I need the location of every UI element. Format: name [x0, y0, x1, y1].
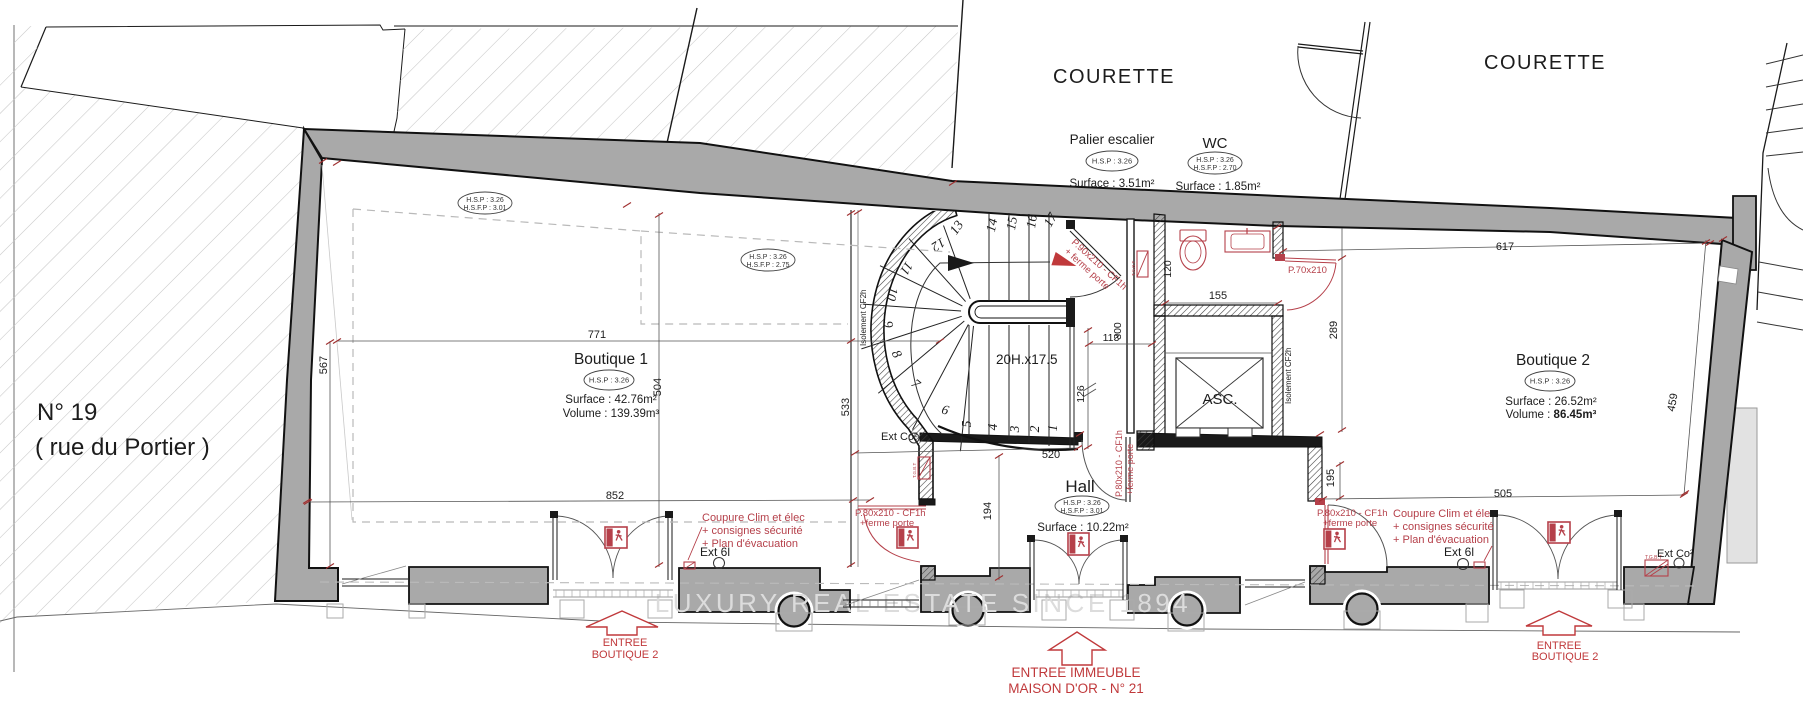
svg-text:Coupure Clim et élec: Coupure Clim et élec: [1393, 508, 1496, 520]
svg-text:Volume : 86.45m³: Volume : 86.45m³: [1506, 409, 1597, 421]
svg-text:N° 19: N° 19: [37, 399, 97, 426]
svg-text:505: 505: [1494, 488, 1512, 500]
svg-text:H.S.F.P : 2.70: H.S.F.P : 2.70: [1193, 165, 1236, 172]
svg-text:H.S.P : 3.26: H.S.P : 3.26: [1530, 377, 1570, 386]
svg-text:+ferme porte: +ferme porte: [1323, 518, 1377, 529]
svg-text:617: 617: [1496, 241, 1514, 253]
svg-text:COURETTE: COURETTE: [1053, 66, 1175, 88]
svg-text:+ferme porte: +ferme porte: [860, 518, 914, 529]
svg-text:H.S.F.P : 2.75: H.S.F.P : 2.75: [746, 262, 789, 269]
svg-text:852: 852: [606, 490, 624, 502]
svg-text:MAISON D'OR - N° 21: MAISON D'OR - N° 21: [1008, 681, 1144, 696]
svg-text:+ consignes sécurité: + consignes sécurité: [702, 525, 803, 537]
svg-text:195: 195: [1325, 469, 1337, 487]
svg-text:16: 16: [1023, 213, 1040, 229]
svg-text:BOUTIQUE 2: BOUTIQUE 2: [1532, 651, 1599, 663]
svg-text:H.S.P : 3.26: H.S.P : 3.26: [1196, 157, 1234, 164]
svg-text:H.S.P : 3.26: H.S.P : 3.26: [749, 254, 787, 261]
svg-text:BOUTIQUE 2: BOUTIQUE 2: [592, 649, 659, 661]
svg-text:300: 300: [1112, 322, 1124, 340]
svg-text:Surface : 42.76m²: Surface : 42.76m²: [565, 394, 657, 406]
svg-text:+ferme porte: +ferme porte: [1125, 444, 1135, 495]
svg-text:520: 520: [1042, 449, 1060, 461]
svg-text:533: 533: [840, 398, 852, 416]
svg-text:Boutique 2: Boutique 2: [1516, 352, 1590, 369]
svg-text:4: 4: [985, 423, 1000, 430]
svg-text:3: 3: [1007, 425, 1022, 433]
svg-text:ENTREE: ENTREE: [603, 637, 648, 649]
svg-text:126: 126: [1075, 385, 1087, 403]
svg-text:1: 1: [1045, 425, 1060, 432]
svg-text:Surface : 3.51m²: Surface : 3.51m²: [1069, 178, 1154, 190]
svg-text:H.S.F.P : 3.01: H.S.F.P : 3.01: [1060, 508, 1103, 515]
svg-text:P.70x210: P.70x210: [1288, 265, 1327, 276]
svg-text:Isolement CF2h: Isolement CF2h: [1284, 348, 1293, 404]
svg-text:Surface : 1.85m²: Surface : 1.85m²: [1175, 181, 1260, 193]
svg-text:20H.x17.5: 20H.x17.5: [996, 352, 1058, 367]
svg-text:H.S.P : 3.26: H.S.P : 3.26: [466, 197, 504, 204]
svg-text:Volume : 139.39m³: Volume : 139.39m³: [563, 408, 660, 420]
svg-text:+ consignes sécurité: + consignes sécurité: [1393, 521, 1494, 533]
svg-text:194: 194: [982, 502, 994, 520]
svg-text:COURETTE: COURETTE: [1484, 52, 1606, 74]
svg-text:T.G.B.T: T.G.B.T: [1131, 260, 1136, 276]
svg-text:Coupure Clim et élec: Coupure Clim et élec: [702, 512, 805, 524]
svg-text:Ext 6l: Ext 6l: [1444, 545, 1474, 559]
svg-text:Surface : 26.52m²: Surface : 26.52m²: [1505, 396, 1597, 408]
svg-text:P.80x210 - CF1h: P.80x210 - CF1h: [1114, 430, 1124, 497]
svg-text:155: 155: [1209, 290, 1227, 302]
svg-text:15: 15: [1003, 215, 1020, 231]
svg-text:Ext Co²: Ext Co²: [1657, 548, 1694, 560]
svg-text:Palier escalier: Palier escalier: [1070, 132, 1155, 147]
svg-text:H.S.P : 3.26: H.S.P : 3.26: [1063, 500, 1101, 507]
svg-text:Hall: Hall: [1065, 477, 1094, 496]
svg-text:2: 2: [1027, 425, 1042, 432]
svg-text:567: 567: [318, 356, 330, 374]
svg-text:WC: WC: [1203, 135, 1228, 152]
svg-text:T.G.B.T: T.G.B.T: [912, 462, 917, 478]
svg-text:ENTREE IMMEUBLE: ENTREE IMMEUBLE: [1011, 665, 1140, 680]
svg-text:( rue du Portier ): ( rue du Portier ): [35, 434, 210, 461]
svg-text:Surface : 10.22m²: Surface : 10.22m²: [1037, 522, 1129, 534]
svg-text:Ext 6l: Ext 6l: [700, 545, 730, 559]
svg-text:+ Plan d'évacuation: + Plan d'évacuation: [1393, 534, 1489, 546]
svg-text:Isolement CF2h: Isolement CF2h: [859, 290, 868, 346]
svg-text:H.S.F.P : 3.01: H.S.F.P : 3.01: [463, 205, 506, 212]
svg-text:ASC.: ASC.: [1202, 391, 1237, 408]
svg-text:771: 771: [588, 329, 606, 341]
svg-text:H.S.P : 3.26: H.S.P : 3.26: [1092, 157, 1132, 166]
svg-text:5: 5: [959, 420, 974, 427]
svg-text:120: 120: [1162, 260, 1174, 278]
svg-text:289: 289: [1328, 321, 1340, 339]
svg-text:H.S.P : 3.26: H.S.P : 3.26: [589, 376, 629, 385]
svg-text:Boutique 1: Boutique 1: [574, 351, 648, 368]
